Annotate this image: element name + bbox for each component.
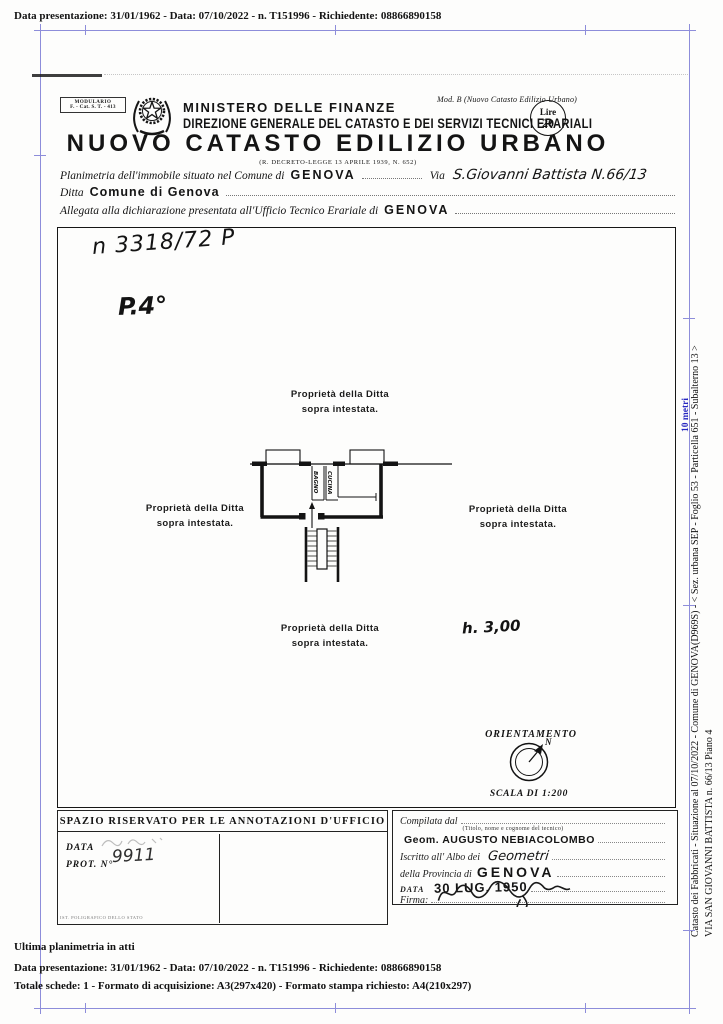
- printer-credit: IST. POLIGRAFICO DELLO STATO: [60, 915, 143, 920]
- frame-tick: [335, 1003, 336, 1013]
- footer-line1: Ultima planimetria in atti: [14, 941, 135, 953]
- via-value-handwritten: S.Giovanni Battista N.66/13: [452, 167, 648, 183]
- dotted-line: [598, 833, 665, 843]
- office-box-title: SPAZIO RISERVATO PER LE ANNOTAZIONI D'UF…: [58, 811, 387, 832]
- comune-value: GENOVA: [284, 168, 361, 182]
- dotted-line: [461, 814, 665, 824]
- scan-smudge: [32, 74, 102, 77]
- frame-tick: [585, 1003, 586, 1013]
- via-label: Via: [422, 170, 453, 182]
- lire-amount: 20: [531, 117, 565, 129]
- scanned-cadastral-document: Data presentazione: 31/01/1962 - Data: 0…: [0, 0, 723, 1024]
- orientamento-label: ORIENTAMENTO: [485, 729, 577, 740]
- room-label-cucina: CUCINA: [326, 471, 332, 494]
- north-label: N: [544, 737, 552, 747]
- ditta-value: Comune di Genova: [84, 185, 226, 199]
- ditta-label: Ditta: [60, 187, 84, 199]
- orientation-compass: ORIENTAMENTO N SCALA DI 1:200: [483, 723, 583, 803]
- dotted-line: [552, 850, 665, 860]
- property-label-line1: Proprietà della Ditta: [250, 622, 410, 637]
- frame-tick: [85, 1003, 86, 1013]
- scale-note-vertical: 10 metri: [681, 398, 691, 432]
- footer-line2: Data presentazione: 31/01/1962 - Data: 0…: [14, 962, 441, 974]
- property-label-bottom: Proprietà della Ditta sopra intestata.: [250, 622, 410, 651]
- cadastre-reference-vertical: Catasto dei Fabbricati - Situazione al 0…: [690, 345, 701, 937]
- frame-tick: [335, 25, 336, 35]
- frame-tick: [85, 25, 86, 35]
- property-label-line1: Proprietà della Ditta: [260, 388, 420, 403]
- floor-plan-drawing: BAGNO CUCINA: [238, 440, 462, 600]
- ministry-name: MINISTERO DELLE FINANZE: [183, 100, 396, 115]
- dotted-line: [362, 168, 422, 179]
- property-label-line2: sopra intestata.: [250, 637, 410, 652]
- scan-fold-line: [104, 74, 688, 75]
- albo-value-handwritten: Geometri: [479, 849, 549, 864]
- firma-label: Firma:: [400, 895, 428, 906]
- frame-top-line: [34, 30, 696, 31]
- floor-label-handwritten: P.4°: [118, 291, 168, 321]
- decree-note: (R. DECRETO-LEGGE 13 APRILE 1939, N. 652…: [57, 159, 619, 166]
- frame-tick: [34, 155, 46, 156]
- footer-line3: Totale schede: 1 - Formato di acquisizio…: [14, 980, 471, 992]
- property-label-line2: sopra intestata.: [260, 403, 420, 418]
- modulario-box: MODULARIO F. - Cat. S. T. - 413: [60, 97, 126, 113]
- modulario-line2: F. - Cat. S. T. - 413: [64, 105, 122, 110]
- property-label-right: Proprietà della Ditta sopra intestata.: [438, 503, 598, 532]
- address-reference-vertical: VIA SAN GIOVANNI BATTISTA n. 66/13 Piano…: [704, 730, 715, 937]
- dotted-line: [226, 185, 675, 196]
- tecnico-name: Geom. AUGUSTO NEBIACOLOMBO: [404, 834, 595, 846]
- allegata-label: Allegata alla dichiarazione presentata a…: [60, 205, 378, 217]
- frame-tick: [683, 318, 695, 319]
- signature: [432, 875, 582, 907]
- document-title: NUOVO CATASTO EDILIZIO URBANO: [57, 130, 619, 158]
- dotted-line: [455, 203, 675, 214]
- office-prot-label: PROT. N°: [66, 860, 113, 870]
- scale-label: SCALA DI 1:200: [490, 789, 568, 799]
- planimetria-label: Planimetria dell'immobile situato nel Co…: [60, 170, 284, 182]
- height-note-handwritten: h. 3,00: [462, 616, 521, 637]
- frame-tick: [585, 25, 586, 35]
- property-label-line1: Proprietà della Ditta: [438, 503, 598, 518]
- property-label-top: Proprietà della Ditta sopra intestata.: [260, 388, 420, 417]
- frame-left-line: [40, 24, 41, 1014]
- room-label-bagno: BAGNO: [312, 471, 318, 494]
- tecnico-note: (Titolo, nome e cognome del tecnico): [428, 826, 598, 832]
- scan-header-metadata: Data presentazione: 31/01/1962 - Data: 0…: [14, 10, 441, 22]
- prot-number-handwritten: 9911: [112, 845, 156, 867]
- frame-bottom-line: [34, 1008, 696, 1009]
- albo-label: Iscritto all' Albo dei: [400, 852, 480, 863]
- office-data-label: DATA: [66, 843, 94, 853]
- office-box-divider: [219, 834, 220, 923]
- ufficio-value: GENOVA: [378, 203, 455, 217]
- property-label-line2: sopra intestata.: [438, 518, 598, 533]
